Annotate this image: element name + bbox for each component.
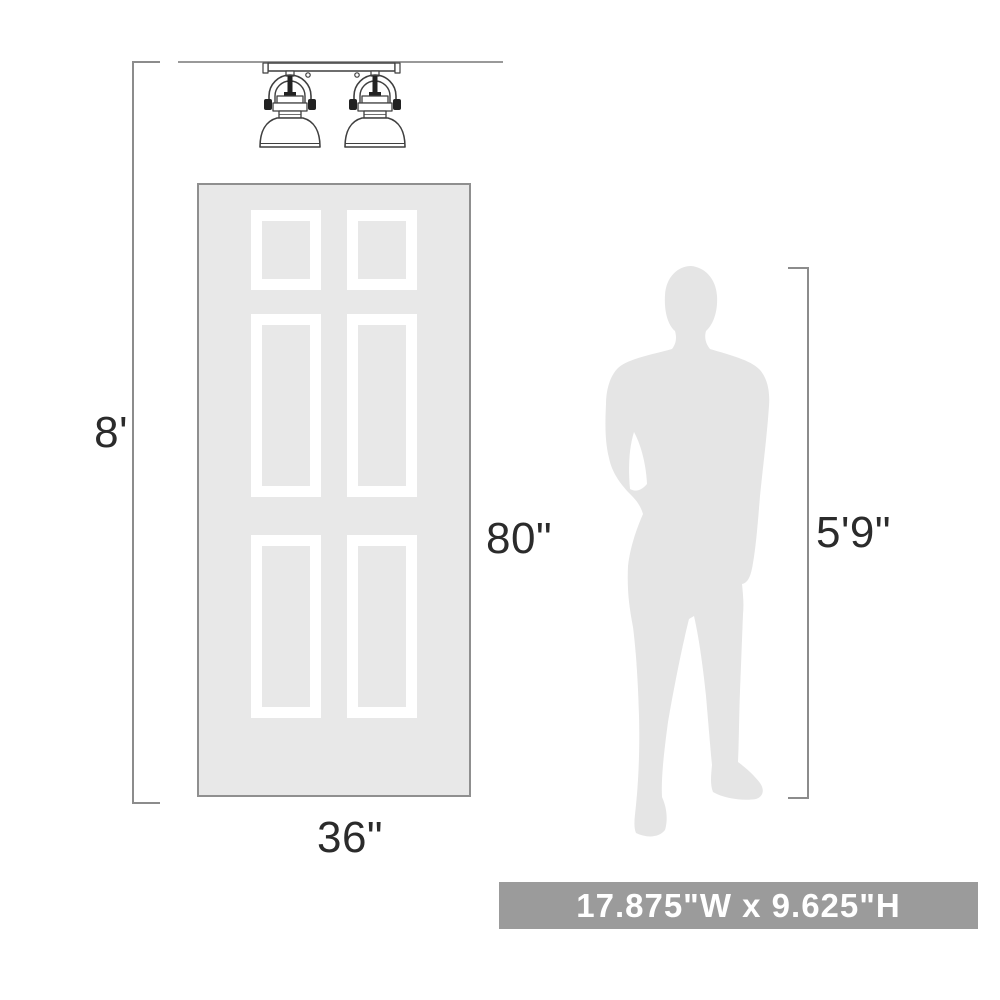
fixture-bar-endcap: [395, 63, 400, 73]
door-panel: [347, 210, 417, 290]
door-panel: [251, 535, 321, 718]
fixture-lamp-head: [345, 71, 405, 147]
fixture-screw: [306, 73, 310, 77]
door-illustration: [197, 183, 471, 797]
diagram-linework: [0, 0, 1000, 1000]
door-panel: [347, 535, 417, 718]
person-silhouette: [605, 266, 769, 836]
fixture-mounting-bar: [268, 63, 395, 71]
lamp-shade: [260, 118, 320, 147]
door-panel: [347, 314, 417, 497]
door-width-label: 36": [270, 815, 430, 861]
ceiling-height-label: 8': [40, 410, 128, 456]
door-panel: [251, 314, 321, 497]
door-panel: [251, 210, 321, 290]
fixture-lamp-head: [260, 71, 320, 147]
product-dimensions-text: 17.875"W x 9.625"H: [576, 887, 900, 925]
person-height-dimension-line: [788, 268, 808, 798]
person-height-label: 5'9": [816, 510, 891, 556]
fixture-screw: [355, 73, 359, 77]
lamp-shade: [345, 118, 405, 147]
door-height-label: 80": [486, 516, 552, 562]
ceiling-height-dimension-line: [133, 62, 160, 803]
product-dimensions-banner: 17.875"W x 9.625"H: [499, 882, 978, 929]
fixture-bar-endcap: [263, 63, 268, 73]
light-fixture-drawing: [260, 63, 405, 147]
scale-diagram: 8' 80" 36" 5'9" 17.875"W x 9.625"H: [0, 0, 1000, 1000]
